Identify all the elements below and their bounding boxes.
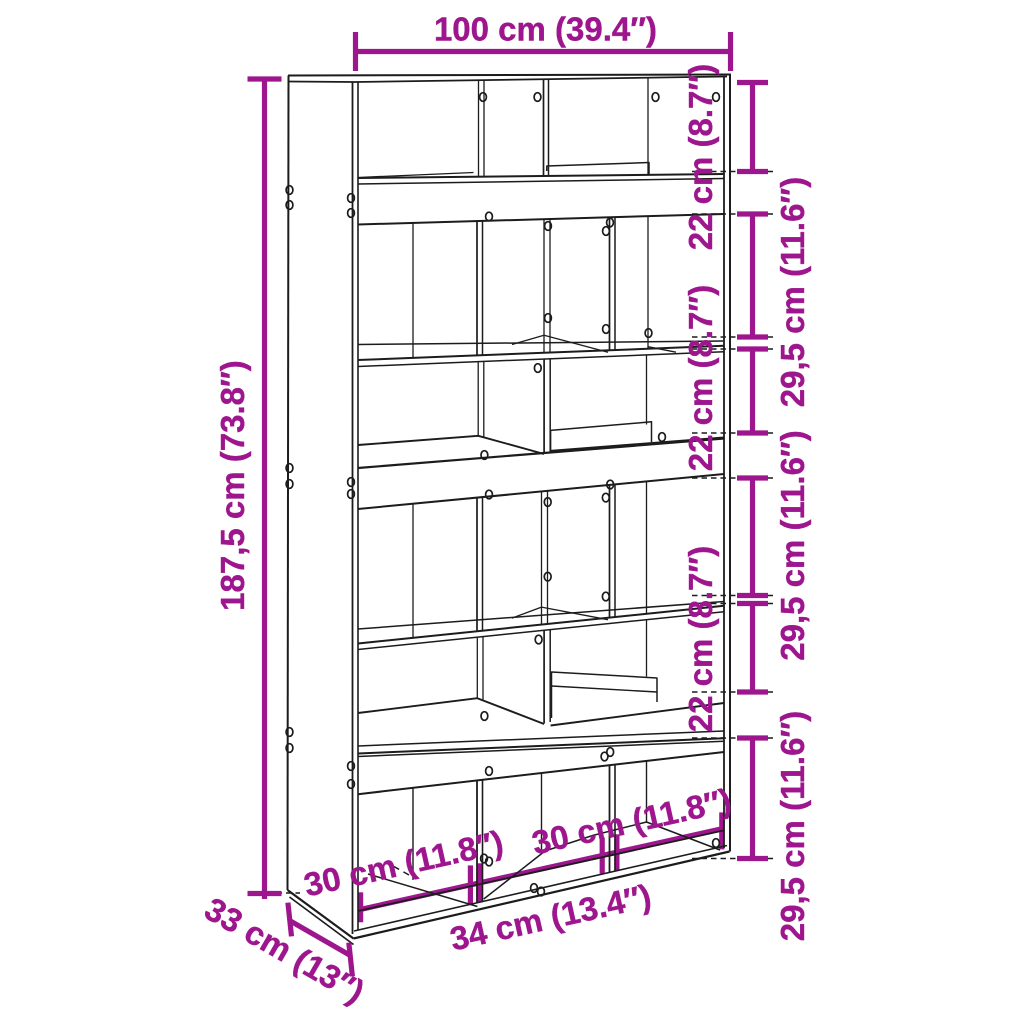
svg-text:22 cm (8.7″): 22 cm (8.7″): [682, 64, 719, 250]
svg-text:187,5 cm (73.8″): 187,5 cm (73.8″): [214, 360, 251, 611]
svg-text:29,5 cm (11.6″): 29,5 cm (11.6″): [774, 177, 811, 407]
svg-text:29,5 cm (11.6″): 29,5 cm (11.6″): [774, 430, 811, 660]
svg-text:22 cm (8.7″): 22 cm (8.7″): [682, 546, 719, 732]
svg-text:100 cm (39.4″): 100 cm (39.4″): [434, 11, 657, 48]
svg-text:22 cm (8.7″): 22 cm (8.7″): [682, 285, 719, 471]
svg-text:29,5 cm (11.6″): 29,5 cm (11.6″): [774, 711, 811, 941]
